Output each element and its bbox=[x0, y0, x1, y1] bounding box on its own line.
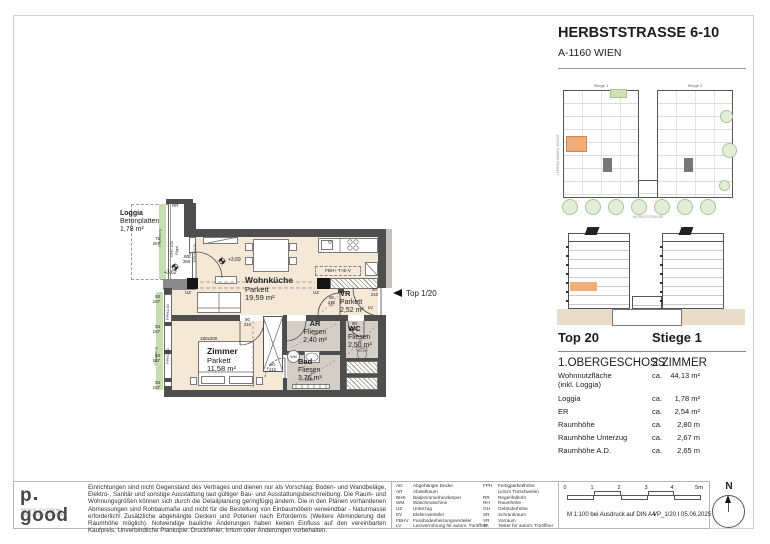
legend-value: Leerverrohrung für autom. Türöffner bbox=[413, 523, 488, 529]
chair bbox=[245, 243, 253, 251]
company-logo: pgood bbox=[20, 486, 86, 526]
dim-window: 93167 bbox=[146, 381, 160, 391]
fph-label: FPH1,00 bbox=[166, 348, 171, 364]
wall-zimmer-top bbox=[172, 315, 240, 321]
wall-wc-top bbox=[364, 315, 386, 321]
wall-ar-left bbox=[283, 315, 287, 351]
nightstand bbox=[190, 377, 197, 385]
north-arrowhead-icon bbox=[725, 495, 731, 503]
info-row-value: 2,80 m bbox=[662, 421, 700, 430]
room-floor: Fliesen bbox=[298, 367, 338, 375]
info-row-value: 2,54 m² bbox=[662, 408, 700, 417]
coffee-table bbox=[215, 276, 237, 284]
legend-column-2: FPHFertigparketthöhe (±3cm Türschwelle) … bbox=[483, 483, 557, 529]
key-plan-green-area bbox=[610, 89, 627, 98]
pillow bbox=[229, 376, 253, 384]
tree-icon bbox=[631, 199, 647, 215]
section-building-right bbox=[662, 241, 724, 309]
tree-icon bbox=[677, 199, 693, 215]
door-height: 259 bbox=[180, 260, 193, 265]
dim-bottom: 167 bbox=[146, 359, 160, 364]
wohnkueche-label: Wohnküche Parkett 19,59 m² bbox=[245, 276, 300, 303]
chair bbox=[289, 257, 297, 265]
section-window-ticks bbox=[566, 246, 569, 304]
kitchen-appliance bbox=[365, 262, 378, 276]
elevation-loggia: +3,62 bbox=[164, 271, 177, 277]
wall-right-upper bbox=[378, 229, 386, 288]
legend-key: LV bbox=[396, 523, 413, 529]
door-height: 210 bbox=[368, 293, 381, 298]
bed-size-label: 180x200 bbox=[200, 336, 217, 341]
wall-pier-2 bbox=[164, 322, 172, 326]
dining-table bbox=[253, 239, 289, 272]
wall-pier-4 bbox=[164, 378, 172, 382]
room-area: 2,40 m² bbox=[295, 337, 335, 345]
kitchen-sink bbox=[321, 240, 333, 250]
uz-label: UZ bbox=[313, 290, 319, 295]
room-area: 3,76 m² bbox=[298, 375, 338, 383]
scale-segment bbox=[567, 495, 594, 500]
tree-icon bbox=[585, 199, 601, 215]
street-label-left: LORENZ-MANDL-GASSE bbox=[556, 134, 560, 175]
key-plan-unit-highlight bbox=[566, 136, 587, 152]
neighbor-wall-band bbox=[386, 229, 392, 288]
elevation-main: +3,69 bbox=[228, 258, 241, 264]
plan-sheet: WM bbox=[0, 0, 770, 544]
chair bbox=[289, 243, 297, 251]
room-fill-wohnkueche-left bbox=[172, 290, 196, 315]
dim-bottom: 167 bbox=[146, 300, 160, 305]
info-row-value: 2,67 m bbox=[662, 434, 700, 443]
bathroom-radiator bbox=[292, 384, 330, 389]
project-subtitle: A-1160 WIEN bbox=[558, 47, 708, 59]
fix-fph-label: FPH±0,00 bbox=[193, 244, 198, 262]
legend-value: Taster für autom. Türöffner bbox=[498, 523, 553, 529]
loggia-name: Loggia bbox=[120, 210, 168, 218]
fph-label: FPH1,00 bbox=[166, 304, 171, 320]
tree-icon bbox=[720, 110, 733, 123]
bad-label: Bad Fliesen 3,76 m² bbox=[298, 358, 338, 383]
rr-label: RR bbox=[172, 203, 179, 208]
info-row-label: Raumhöhe Unterzug bbox=[558, 434, 653, 443]
shaft-2 bbox=[346, 377, 378, 390]
key-plan-stiege2-label: Stiege 2 bbox=[659, 84, 731, 89]
north-label: N bbox=[715, 481, 743, 492]
column-uz-left bbox=[187, 278, 198, 289]
wall-top bbox=[190, 229, 386, 237]
plan-reference: VP_1/20 I 05.06.2025 bbox=[653, 512, 711, 519]
legend-key: TA bbox=[483, 523, 498, 529]
uz-label: UZ bbox=[185, 290, 191, 295]
planter-strip-lower bbox=[156, 292, 163, 390]
room-floor: Fliesen bbox=[348, 334, 382, 342]
logo-dot-icon bbox=[34, 497, 38, 501]
door-dim-zimmer: 80210 bbox=[241, 318, 254, 328]
info-row-value: 1,78 m² bbox=[662, 395, 700, 404]
door-height: 210 bbox=[348, 327, 361, 332]
unit-stiege: Stiege 1 bbox=[652, 331, 746, 345]
section-building-left bbox=[568, 241, 630, 309]
logo-p: p bbox=[20, 485, 32, 506]
chair bbox=[245, 257, 253, 265]
scale-segment bbox=[621, 495, 648, 500]
disclaimer-text: Einrichtungen sind nicht Gegenstand des … bbox=[88, 484, 386, 534]
scale-segment bbox=[674, 495, 701, 500]
dim-bottom: 167 bbox=[146, 330, 160, 335]
key-plan-stair-right bbox=[684, 158, 693, 172]
footer-divider bbox=[558, 481, 559, 529]
bhk-label: BHK bbox=[305, 377, 314, 382]
fbh-box-label: FBH+ T+E-V bbox=[315, 266, 361, 276]
scale-note: M 1:100 bei Ausdruck auf DIN A4 bbox=[567, 512, 655, 519]
unit-top-number: Top 20 bbox=[558, 331, 658, 345]
door-height: 210 bbox=[266, 368, 279, 373]
dim-bottom: 267 bbox=[146, 242, 160, 247]
room-area: 19,59 m² bbox=[245, 294, 300, 303]
tree-icon bbox=[700, 199, 716, 215]
rigol-label: Rigol bbox=[175, 246, 180, 255]
footer-divider bbox=[391, 481, 392, 529]
washing-machine-label: WM bbox=[290, 355, 296, 359]
scale-segment bbox=[648, 491, 674, 496]
info-row-label: Raumhöhe bbox=[558, 421, 653, 430]
room-name: Bad bbox=[298, 358, 338, 367]
loggia-floor-finish: Betonplatten bbox=[120, 218, 168, 226]
tree-icon bbox=[654, 199, 670, 215]
sofa bbox=[197, 292, 241, 313]
unit-marker-label: Top 1/20 bbox=[406, 289, 437, 298]
logo-subline2: ARCHITEKTEN ZT GMBH bbox=[21, 513, 66, 517]
title-divider bbox=[558, 68, 746, 69]
zimmer-label: Zimmer Parkett 11,58 m² bbox=[207, 347, 257, 374]
info-row-label2: (inkl. Loggia) bbox=[558, 381, 653, 390]
tree-icon bbox=[562, 199, 578, 215]
room-area: 2,50 m² bbox=[348, 342, 382, 350]
section-unit-highlight bbox=[570, 282, 597, 291]
key-plan-stair-left bbox=[603, 158, 612, 172]
door-dim-bad: 80210 bbox=[266, 363, 279, 373]
legend-row: TATaster für autom. Türöffner bbox=[483, 523, 557, 529]
wall-pier-1 bbox=[164, 288, 172, 294]
dim-loggia: 75267 bbox=[146, 237, 160, 247]
unit-room-count: 2 ZIMMER bbox=[652, 357, 746, 370]
room-area: 11,58 m² bbox=[207, 365, 257, 374]
tree-icon bbox=[722, 143, 737, 158]
scale-tick: 0 bbox=[560, 485, 570, 491]
scale-segment bbox=[594, 491, 621, 496]
column-uz-right bbox=[317, 278, 330, 289]
unit-marker-arrow-icon bbox=[393, 289, 402, 297]
door-dim-balcony: 80259 bbox=[180, 255, 193, 265]
street-label-bottom: HERBSTSTRASSE bbox=[604, 215, 692, 219]
nightstand bbox=[256, 377, 263, 385]
wall-bottom bbox=[164, 390, 386, 397]
dim-window: 93167 bbox=[146, 325, 160, 335]
dim-window: 93167 bbox=[146, 354, 160, 364]
info-row-value: 44,13 m² bbox=[662, 372, 700, 381]
door-height: 210 bbox=[241, 323, 254, 328]
key-plan-stiege1-label: Stiege 1 bbox=[565, 84, 637, 89]
key-plan-mid-block bbox=[638, 180, 658, 198]
pillow bbox=[201, 376, 225, 384]
table-divider bbox=[558, 351, 746, 352]
dim-bottom: 167 bbox=[146, 386, 160, 391]
shaft-1 bbox=[346, 361, 378, 374]
tree-icon bbox=[608, 199, 624, 215]
info-row-label: Raumhöhe A.D. bbox=[558, 447, 653, 456]
wall-pier-5 bbox=[164, 386, 172, 390]
tree-icon bbox=[719, 180, 730, 191]
info-row-label: ER bbox=[558, 408, 653, 417]
scale-tick: 5m bbox=[692, 485, 706, 491]
dim-window: 93167 bbox=[146, 295, 160, 305]
section-basement bbox=[612, 309, 682, 326]
info-row-value: 2,65 m bbox=[662, 447, 700, 456]
lv-label: LV bbox=[368, 305, 373, 310]
sideboard bbox=[203, 237, 238, 244]
door-dim-entry: 90210 bbox=[368, 288, 381, 298]
section-window-ticks bbox=[660, 246, 663, 304]
project-title: HERBSTSTRASSE 6-10 bbox=[558, 25, 753, 41]
info-row-label: Loggia bbox=[558, 395, 653, 404]
wall-bad-left-stub bbox=[283, 378, 287, 390]
section-mid-block bbox=[632, 296, 662, 309]
room-name: AR bbox=[295, 320, 335, 329]
logo-subline1: PRISCHL GOODMANN bbox=[21, 508, 61, 512]
door-dim-wc: 80210 bbox=[348, 322, 361, 332]
